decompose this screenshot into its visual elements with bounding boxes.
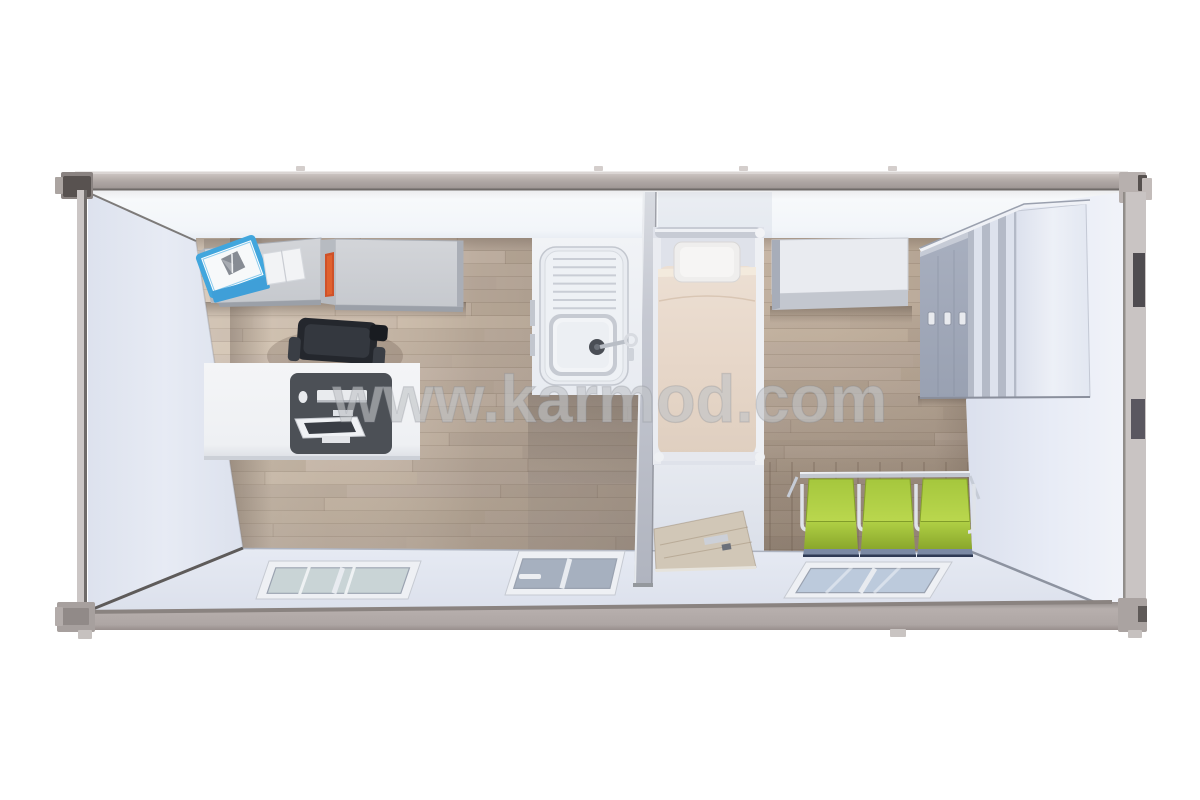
svg-text:www.karmod.com: www.karmod.com	[332, 362, 888, 437]
